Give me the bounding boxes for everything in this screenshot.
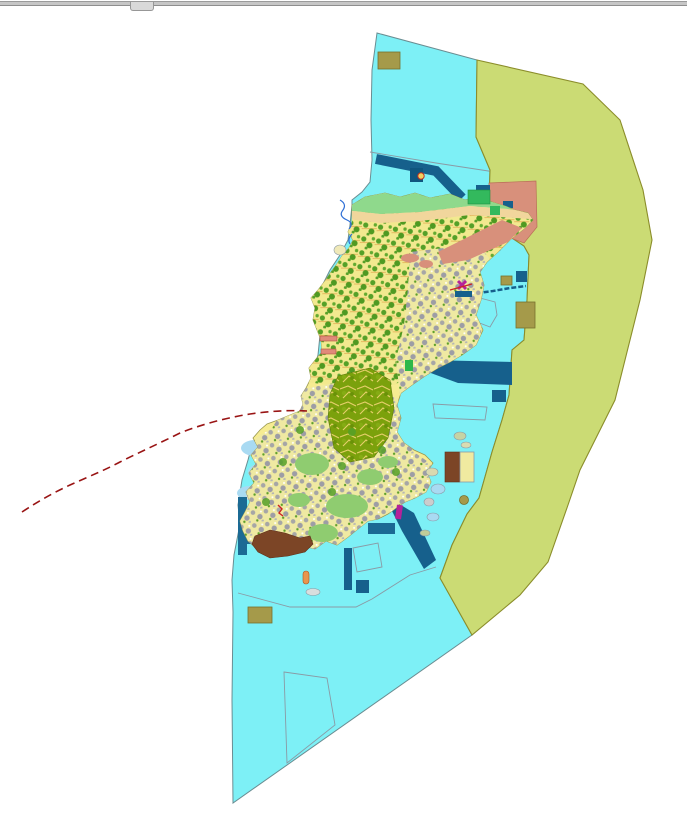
khaki-block-south xyxy=(248,607,272,623)
se-pier-bar xyxy=(368,523,395,534)
bright-green-block xyxy=(468,190,490,204)
khaki-block-east xyxy=(516,302,535,328)
bright-green-block-small xyxy=(490,206,500,215)
ne-harbor-block xyxy=(492,390,506,402)
khaki-block-north xyxy=(378,52,400,69)
khaki-block-east-small xyxy=(501,276,512,285)
small-boat-marker xyxy=(418,173,424,179)
khaki-dot xyxy=(460,496,469,505)
sea-navy-block-ne xyxy=(516,271,527,282)
south-navy-block xyxy=(356,580,369,593)
brown-yellow-facility xyxy=(445,452,474,482)
orange-buoy xyxy=(303,571,309,584)
south-navy-bar xyxy=(344,548,352,590)
map-viewport xyxy=(0,0,687,821)
map-canvas xyxy=(0,0,687,821)
bright-green-spot xyxy=(405,360,413,371)
gray-islet xyxy=(306,589,320,596)
